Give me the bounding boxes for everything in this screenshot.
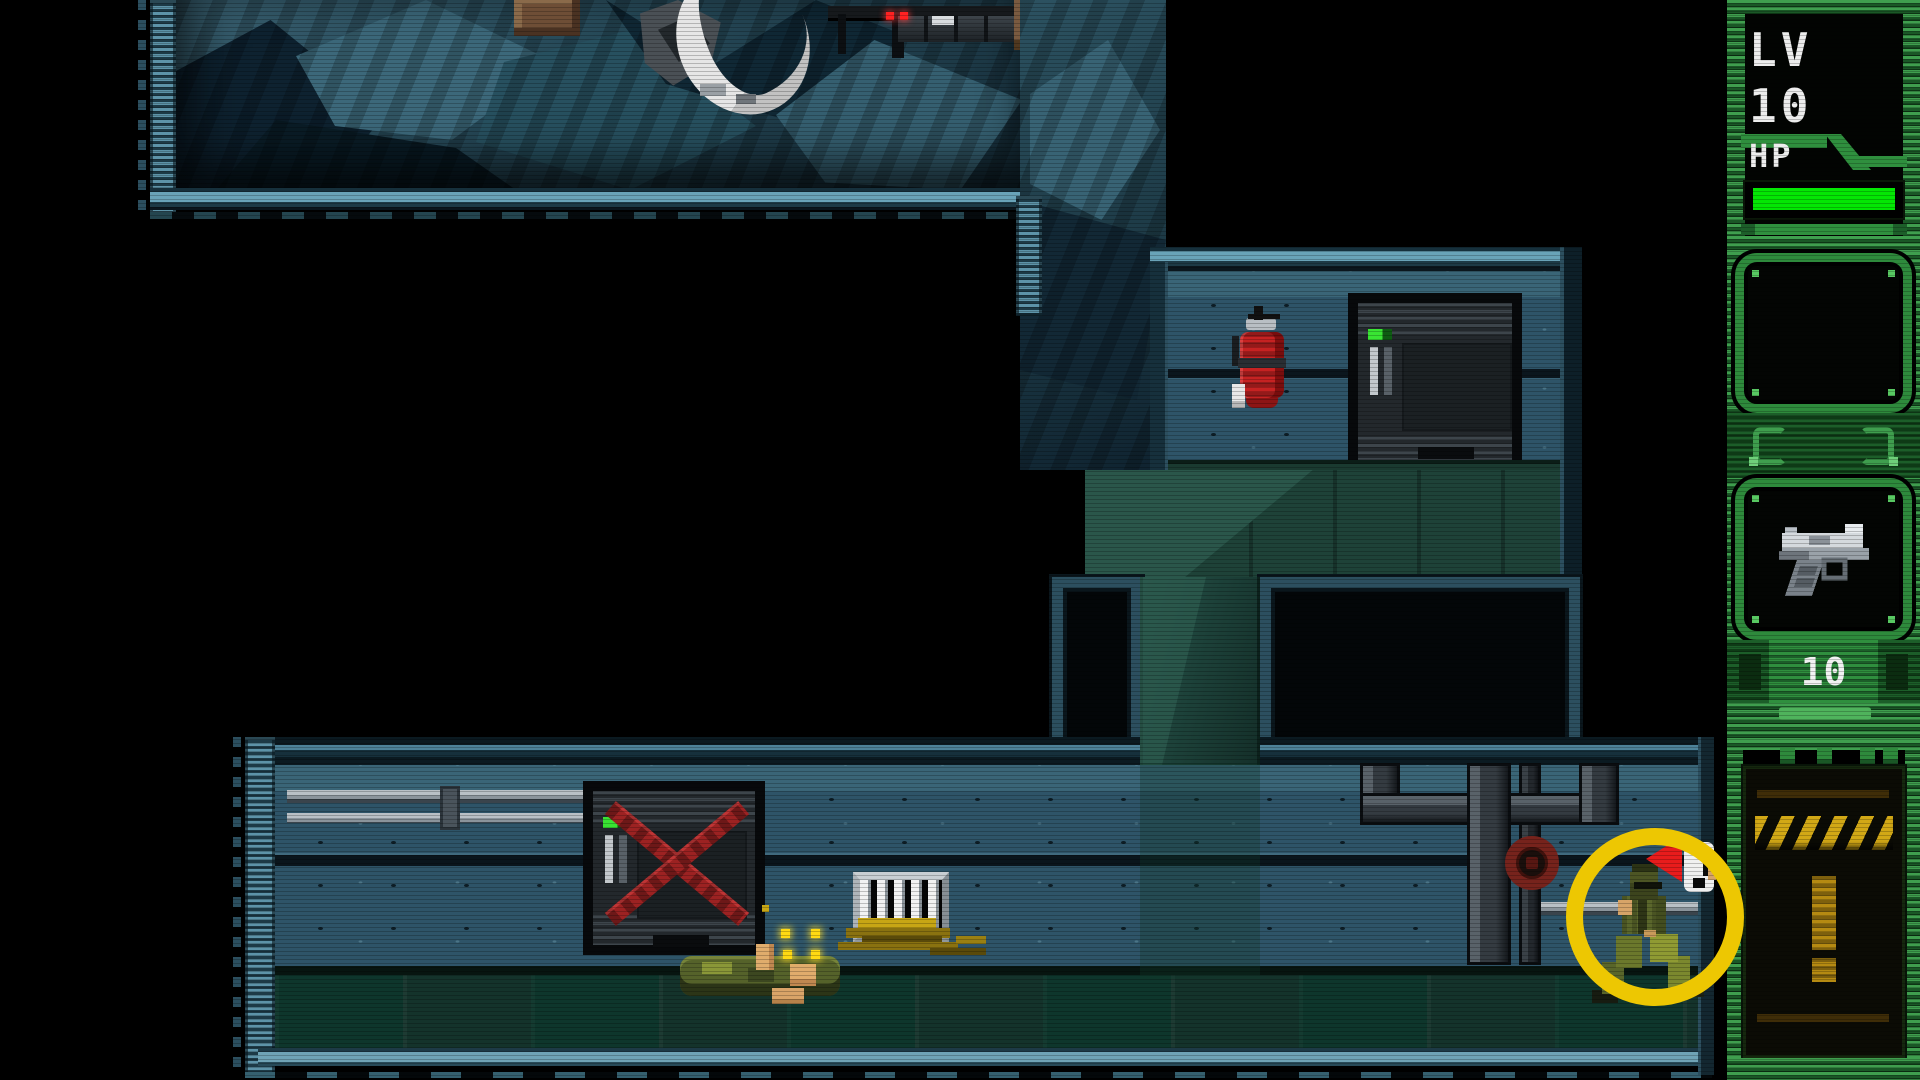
red-light-icon <box>886 12 894 20</box>
red-light-icon <box>900 12 908 20</box>
debris <box>514 0 580 36</box>
item-sparkle-icon <box>781 929 790 938</box>
hp-tab <box>1851 156 1907 167</box>
hinge-tooth <box>1860 748 1875 764</box>
sprite-part <box>736 94 756 104</box>
hud-panel: LV 10 HP <box>1727 0 1920 1080</box>
panel-groove <box>1757 790 1889 798</box>
hazard-stripes-icon <box>1755 816 1893 850</box>
pipe-elbow <box>1579 763 1619 825</box>
slot-corner-dot <box>1888 495 1895 502</box>
sprite-part <box>932 16 954 25</box>
sprite-part <box>702 962 732 974</box>
sprite-part <box>1739 654 1761 690</box>
hud-hinge-row <box>1727 740 1920 766</box>
game-stage[interactable]: LV 10 HP <box>0 0 1920 1080</box>
sprite-part <box>1526 857 1538 869</box>
vertical-shaft <box>1140 577 1260 767</box>
corridor-border-top <box>1260 737 1712 765</box>
sprite-part <box>1886 654 1908 690</box>
hud-frame <box>1727 236 1920 253</box>
hp-bar-track <box>1743 180 1905 220</box>
sprite-part <box>1232 384 1245 408</box>
item-slot-empty <box>1735 253 1912 413</box>
item-sparkle-icon <box>762 905 769 912</box>
sprite-part <box>1248 314 1280 319</box>
sprite-part <box>1384 347 1392 395</box>
hinge-tooth <box>1817 748 1832 764</box>
corridor-border-left <box>245 737 275 1075</box>
hp-bar-base <box>1741 224 1907 235</box>
slot-corner-dot <box>1752 389 1759 396</box>
slot-corner-dot <box>1752 270 1759 277</box>
bracket-dot <box>1889 457 1898 466</box>
hud-frame <box>1905 740 1920 1080</box>
sprite-part <box>1246 398 1278 408</box>
sprite-part <box>1418 447 1474 459</box>
room-underfloor <box>1085 470 1580 578</box>
valve-wheel-icon <box>1505 836 1559 890</box>
exclamation-icon <box>1812 958 1836 982</box>
exclamation-icon <box>1812 876 1836 950</box>
straw-pile <box>956 936 986 944</box>
slot-corner-dot <box>1888 616 1895 623</box>
cave-border-step <box>1016 196 1042 316</box>
corridor-border-top <box>245 737 1140 765</box>
room-border-right <box>1560 247 1582 619</box>
dead-guard <box>672 938 857 1010</box>
highlight-circle <box>1566 828 1744 1006</box>
sprite-part <box>1238 358 1286 368</box>
slot-corner-dot <box>1888 389 1895 396</box>
hazard-alert-panel <box>1743 766 1905 1058</box>
slot-corner-dot <box>1888 270 1895 277</box>
shaft-shadow-column <box>1140 763 1260 979</box>
hud-frame <box>1727 0 1920 14</box>
slot-corner-dot <box>1752 616 1759 623</box>
dark-window <box>1260 577 1580 763</box>
item-sparkle-icon <box>783 950 792 959</box>
corridor-floor-edge <box>258 1048 1698 1066</box>
straw-pile <box>930 948 986 955</box>
corridor-floor <box>275 966 1698 1052</box>
sprite-part <box>790 964 816 986</box>
sprite-part <box>1370 347 1378 395</box>
hp-label: HP <box>1749 138 1829 174</box>
sprite-part <box>700 84 726 96</box>
corridor-border-dashes <box>233 737 241 1075</box>
item-sparkle-icon <box>811 950 820 959</box>
red-x-mark-icon <box>607 797 747 931</box>
cave-border-bottom <box>150 188 1046 210</box>
sprite-part <box>748 968 774 982</box>
hud-accent-bar <box>1779 707 1871 720</box>
sprite-part <box>772 988 804 1004</box>
hinge-tooth <box>1780 748 1795 764</box>
panel-groove <box>1757 1014 1889 1022</box>
rail-bracket <box>440 786 460 830</box>
cave-border-dashes <box>138 0 146 214</box>
x-marked-door <box>583 781 765 955</box>
hinge-tooth <box>1883 748 1898 764</box>
hud-frame <box>1727 413 1920 478</box>
slot-corner-dot <box>1752 495 1759 502</box>
fire-extinguisher <box>1232 306 1290 418</box>
sprite-part <box>1140 577 1260 767</box>
corridor-border-dashes <box>245 1072 1712 1078</box>
pistol-icon <box>1772 521 1876 599</box>
pipe-arm <box>1360 793 1482 825</box>
wrecked-machine <box>640 0 840 115</box>
sprite-part <box>756 944 774 970</box>
wall-rail <box>287 790 585 803</box>
control-cabinet <box>1348 293 1522 477</box>
ceiling-sensor-red-lights <box>828 0 1042 60</box>
item-slot-pistol <box>1735 478 1912 640</box>
sprite-part <box>1085 470 1580 578</box>
wall-rail <box>287 813 585 823</box>
hp-bar <box>1753 188 1895 210</box>
item-sparkle-icon <box>811 929 820 938</box>
cave-border-left <box>150 0 176 214</box>
sprite-part <box>838 14 846 54</box>
status-panel: LV 10 HP <box>1745 14 1903 236</box>
ammo-count: 10 <box>1769 652 1878 692</box>
sprite-part <box>1402 343 1512 431</box>
ammo-band: 10 <box>1727 640 1920 703</box>
dark-window <box>1052 577 1142 763</box>
hud-frame <box>1727 1058 1920 1080</box>
room-border-top <box>1150 247 1582 273</box>
cave-border-dashes <box>150 212 1046 219</box>
ammo-plate: 10 <box>1769 640 1878 703</box>
bracket-dot <box>1749 457 1758 466</box>
green-led-icon <box>1368 329 1392 340</box>
bracket-glyph <box>1753 427 1787 465</box>
level-label: LV 10 <box>1749 22 1901 78</box>
